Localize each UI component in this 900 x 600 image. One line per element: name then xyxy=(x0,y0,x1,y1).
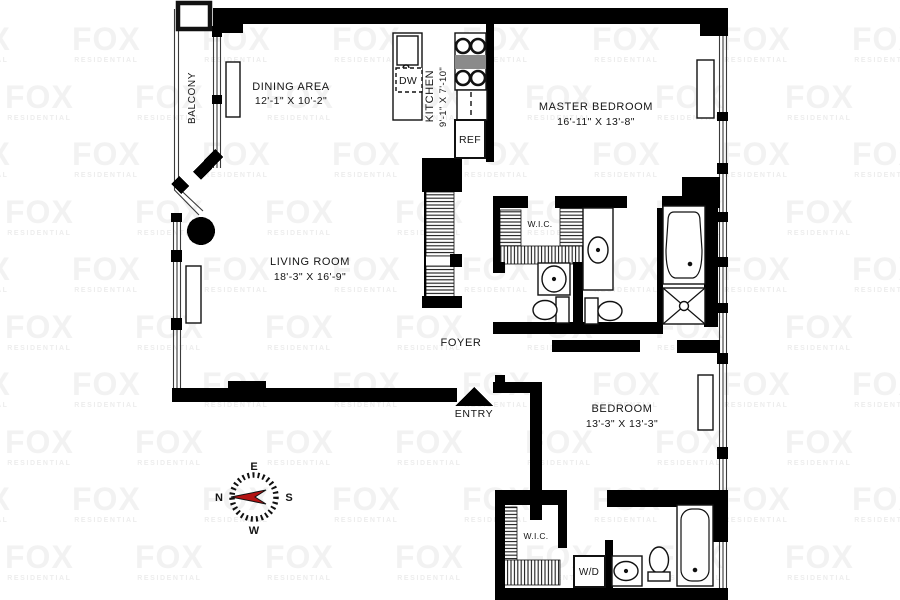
toilet-bowl-2 xyxy=(598,302,622,321)
wall-closet-bottom xyxy=(422,296,462,308)
master-bath-fixtures xyxy=(533,206,705,324)
wall-closet-top xyxy=(422,158,462,192)
wall-bedroom-top-a xyxy=(552,340,640,352)
compass-north: N xyxy=(215,492,223,504)
wic-upper-shelf-left xyxy=(500,210,521,246)
washer-dryer-label: W/D xyxy=(579,567,599,578)
bedroom-dims: 13'-3" X 13'-3" xyxy=(586,418,658,430)
mullion xyxy=(212,95,222,104)
bedroom-label: BEDROOM xyxy=(591,403,652,415)
wall-bedroom-top-b xyxy=(677,340,720,353)
compass-east: E xyxy=(250,461,257,473)
closet-left-line xyxy=(424,192,426,297)
radiator-bedroom xyxy=(698,375,713,430)
toilet-bowl-3 xyxy=(650,547,669,573)
wic-lower-label: W.I.C. xyxy=(524,531,549,541)
floorplan-page: FOXRESIDENTIALFOXRESIDENTIALFOXRESIDENTI… xyxy=(0,0,900,600)
toilet-bowl-1 xyxy=(533,301,557,320)
hall-closet-shelves-top xyxy=(426,192,454,256)
wic-upper-label: W.I.C. xyxy=(528,219,553,229)
burner xyxy=(456,39,470,53)
toilet-base-3 xyxy=(648,572,670,581)
kitchen-dims: 9'-1" X 7'-10" xyxy=(438,67,449,127)
balcony-door-leaf xyxy=(193,149,223,180)
foyer-label: FOYER xyxy=(441,337,482,349)
living-room-dims: 18'-3" X 16'-9" xyxy=(274,271,346,283)
balcony-door-jamb xyxy=(171,176,189,194)
column xyxy=(187,217,215,245)
wic-lower-shelf-bottom xyxy=(502,560,560,585)
mullion xyxy=(171,250,182,262)
dining-label: DINING AREA xyxy=(252,81,330,93)
mullion xyxy=(212,26,222,37)
burner xyxy=(471,71,485,85)
wall-bath-top-b xyxy=(555,196,627,208)
floorplan-drawing: BALCONY DINING AREA 12'-1" X 10'-2" KITC… xyxy=(0,0,900,600)
radiator-living xyxy=(186,266,201,323)
wall-tubroom-left xyxy=(657,208,663,334)
entry-label: ENTRY xyxy=(455,408,493,420)
mullion xyxy=(717,303,728,313)
master-bedroom-dims: 16'-11" X 13'-8" xyxy=(557,116,635,128)
wall-tubroom-right xyxy=(704,177,718,327)
stove-band xyxy=(455,55,486,69)
wall-bath-bottom-a xyxy=(493,322,573,334)
compass-west: W xyxy=(249,525,260,537)
wall-cluster-top-a xyxy=(495,490,563,505)
radiator-master xyxy=(697,60,714,118)
compass: E S W N xyxy=(215,461,293,537)
wall-living-bottom-step xyxy=(228,381,266,389)
mullion xyxy=(717,163,728,174)
compass-south: S xyxy=(285,492,292,504)
mullion xyxy=(717,447,728,459)
wall-right-top-corner xyxy=(700,24,728,36)
mullion xyxy=(171,213,182,222)
wall-top xyxy=(213,8,728,24)
mullion xyxy=(717,212,728,222)
wall-wic-upper-left xyxy=(493,208,500,268)
mullion xyxy=(717,257,728,267)
window-left-band xyxy=(174,214,181,388)
mullion xyxy=(717,112,728,121)
toilet-tank-2 xyxy=(585,298,598,324)
burner xyxy=(471,39,485,53)
mullion xyxy=(717,353,728,364)
radiator-dining xyxy=(226,62,240,117)
kitchen-sink xyxy=(397,36,418,65)
master-bedroom-label: MASTER BEDROOM xyxy=(539,101,653,113)
closet-mid-tab xyxy=(450,254,462,267)
shower-drain xyxy=(680,302,689,311)
wall-bath-top-a xyxy=(493,196,528,208)
bathtub2-outer xyxy=(677,505,713,586)
balcony-label: BALCONY xyxy=(187,72,198,124)
wic-upper-shelf-right xyxy=(560,208,583,246)
wall-living-bottom xyxy=(172,388,457,402)
mullion xyxy=(171,318,182,330)
burner xyxy=(456,71,470,85)
dining-dims: 12'-1" X 10'-2" xyxy=(255,95,327,107)
wall-wic-upper-corner xyxy=(493,262,505,273)
shaft xyxy=(178,3,210,29)
wall-wic-lower-right xyxy=(558,490,567,548)
wic-upper-shelf-bottom xyxy=(500,246,583,264)
kitchen-label: KITCHEN xyxy=(424,70,436,122)
kitchen-counter-right xyxy=(457,90,487,120)
compass-needle xyxy=(231,490,266,504)
entry-arrow xyxy=(455,387,493,406)
refrigerator-label: REF xyxy=(459,134,481,146)
toilet-tank-1 xyxy=(556,297,569,323)
hall-closet-shelves-bottom xyxy=(426,266,454,297)
drain xyxy=(625,570,628,573)
tub2-drain xyxy=(693,568,696,571)
living-room-label: LIVING ROOM xyxy=(270,256,350,268)
tub-drain xyxy=(688,262,691,265)
wall-cluster-left xyxy=(495,490,505,595)
dishwasher-label: DW xyxy=(399,75,417,87)
drain xyxy=(597,249,600,252)
wall-entry-right xyxy=(493,382,542,393)
wall-bottom xyxy=(495,588,728,600)
drain xyxy=(553,278,556,281)
